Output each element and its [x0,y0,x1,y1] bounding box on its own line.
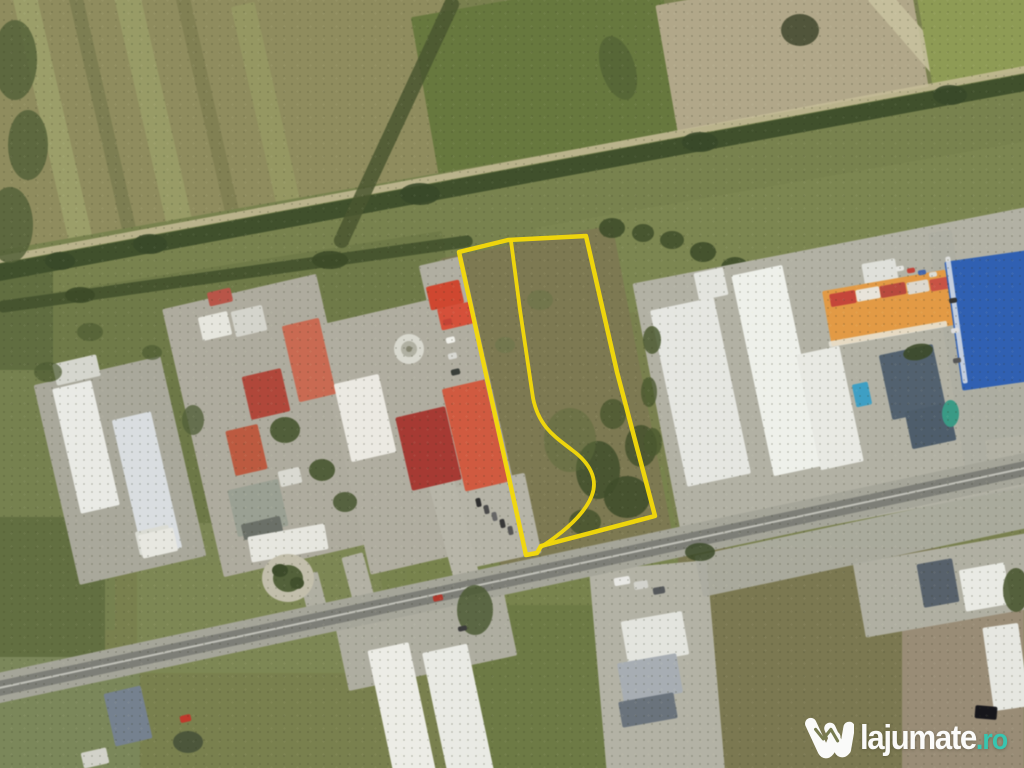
car [499,518,506,528]
hedge-trees [400,183,440,205]
car [491,511,498,521]
tree-clump [77,323,103,341]
tree-row [643,326,661,354]
tree-clump [604,476,650,518]
tree-clump [142,345,162,360]
tree-row [641,377,657,407]
tree-clump [309,459,335,481]
tree-clump [8,110,48,180]
car [475,497,482,507]
tree-clump [34,362,62,382]
hedge-trees [133,234,167,254]
watermark-tld: .ro [976,726,1007,755]
hedge-trees [933,85,967,105]
tree-row [599,218,625,238]
watermark-text: lajumate.ro [860,721,1007,755]
yard [966,382,1024,442]
tree-row [685,543,715,561]
hedge-trees [312,251,348,269]
tree-clump [781,14,819,46]
car [896,265,905,271]
building-slate [916,558,959,608]
truck [652,586,665,595]
car [953,357,962,363]
hedge-trees [45,252,75,270]
terrain-layer [0,0,1024,768]
tree [272,564,288,577]
tree-row [644,428,662,456]
car [483,504,490,514]
tree-row [690,242,716,262]
tree-clump [173,731,203,753]
pool-slide [942,400,959,427]
grass-patch [495,337,515,353]
tree [290,577,304,589]
car [929,271,938,277]
grass-patch [544,408,596,472]
hedge-trees [65,287,95,303]
lajumate-logo-icon [804,715,854,761]
car [949,297,958,303]
tree-row [632,224,654,242]
car [918,269,927,275]
grass-patch [527,290,553,310]
tree-clump [569,509,601,535]
watermark: lajumate.ro [804,712,1020,764]
water-tank [406,346,412,352]
car [507,525,514,535]
satellite-image: lajumate.ro [0,0,1024,768]
tree-clump [182,405,204,435]
watermark-brand: lajumate [860,721,976,755]
car [907,267,916,273]
tree-clump [333,492,357,512]
tree-clump [1003,568,1024,612]
car [457,625,467,632]
car [951,327,960,333]
tree-clump [270,417,300,443]
tree-row [660,231,684,249]
hedge-trees [682,132,718,152]
tree-clump [600,399,626,429]
